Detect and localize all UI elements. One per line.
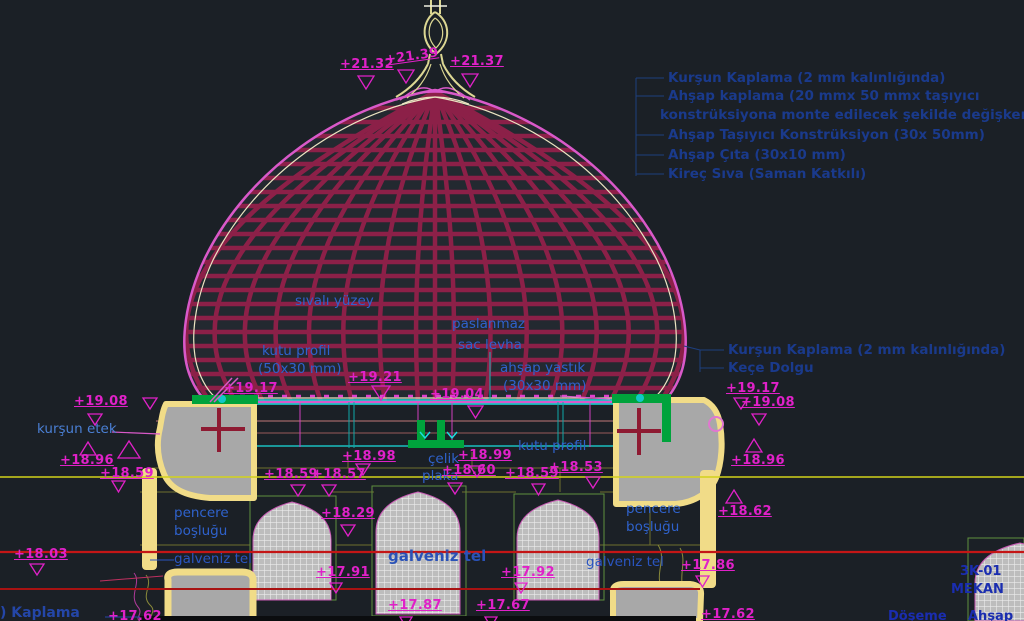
callout-pencere-left: pencere — [174, 506, 229, 520]
elevation-label: +18.98 — [342, 450, 396, 464]
elevation-label: +18.29 — [321, 507, 375, 521]
elevation-label: +19.17 — [224, 382, 278, 396]
elevation-label: +18.60 — [442, 464, 496, 478]
callout-kursun-kaplama: Kurşun Kaplama (2 mm kalınlığında) — [728, 343, 1005, 357]
elevation-label: +19.21 — [348, 371, 402, 385]
elevation-label: +18.62 — [718, 505, 772, 519]
callout-sivali-yuzey: sıvalı yüzey — [295, 294, 374, 308]
elevation-label: +21.37 — [450, 55, 504, 69]
callout-sac-levha: sac levha — [458, 338, 522, 352]
arch-window — [517, 500, 599, 600]
callout-doseme: Döşeme — [888, 610, 947, 621]
legend-item: Ahşap Çıta (30x10 mm) — [668, 148, 846, 162]
callout-kutu-profil: kutu profil — [262, 344, 330, 358]
elevation-label: +17.87 — [388, 599, 442, 613]
callout-kaplama-fragment: ) Kaplama — [0, 606, 80, 621]
elevation-label: +17.62 — [108, 610, 162, 621]
callout-kece-dolgu: Keçe Dolgu — [728, 361, 814, 375]
legend-item: Kireç Sıva (Saman Katkılı) — [668, 167, 866, 181]
callout-galveniz-left: galveniz tel — [174, 552, 252, 566]
elevation-label: +17.62 — [701, 608, 755, 621]
callout-galveniz-right: galveniz tel — [586, 555, 664, 569]
elevation-label: +17.67 — [476, 599, 530, 613]
callout-ahsap-fragment: Ahşap — [968, 610, 1013, 621]
legend-item: Ahşap Taşıyıcı Konstrüksiyon (30x 50mm) — [668, 128, 985, 142]
legend-item: Ahşap kaplama (20 mmx 50 mmx taşıyıcı — [668, 89, 979, 103]
elevation-label: +19.08 — [74, 395, 128, 409]
sheet-name: MEKAN — [951, 583, 1004, 597]
callout-boslugu-right: boşluğu — [626, 520, 679, 534]
elevation-label: +17.91 — [316, 566, 370, 580]
elevation-label: +18.59 — [264, 468, 318, 482]
elevation-label: +18.99 — [458, 449, 512, 463]
callout-kursun-etek: kurşun etek — [37, 422, 117, 436]
elevation-label: +17.86 — [681, 559, 735, 573]
callout-pencere-right: pencere — [626, 502, 681, 516]
callout-boslugu-left: boşluğu — [174, 524, 227, 538]
elevation-label: +19.17 — [726, 382, 780, 396]
elevation-label: +19.08 — [741, 396, 795, 410]
callout-paslanmaz: paslanmaz — [452, 317, 525, 331]
dome — [170, 88, 700, 402]
legend-item: konstrüksiyona monte edilecek şekilde de… — [660, 108, 1024, 122]
elevation-label: +19.04 — [430, 388, 484, 402]
elevation-label: +18.57 — [312, 468, 366, 482]
sheet-code: 3K-01 — [960, 565, 1001, 579]
left-cornice-stone — [158, 404, 254, 498]
elevation-label: +18.03 — [14, 548, 68, 562]
elevation-label: +18.59 — [100, 467, 154, 481]
callout-kutu-profil-2: kutu profil — [518, 439, 586, 453]
callout-ahsap-yastik-size: (30x30 mm) — [503, 379, 586, 393]
bottom-left-stone — [168, 572, 253, 621]
legend-item: Kurşun Kaplama (2 mm kalınlığında) — [668, 71, 945, 85]
elevation-label: +17.92 — [501, 566, 555, 580]
callout-galveniz-center: galveniz tel — [388, 549, 486, 565]
cad-viewport[interactable]: +21.32 +21.39 +21.37 Kurşun Kaplama (2 m… — [0, 0, 1024, 621]
callout-kutu-profil-size: (50x30 mm) — [258, 362, 341, 376]
elevation-label: +18.96 — [731, 454, 785, 468]
callout-ahsap-yastik: ahşap yastık — [500, 361, 585, 375]
elevation-label: +18.53 — [549, 461, 603, 475]
